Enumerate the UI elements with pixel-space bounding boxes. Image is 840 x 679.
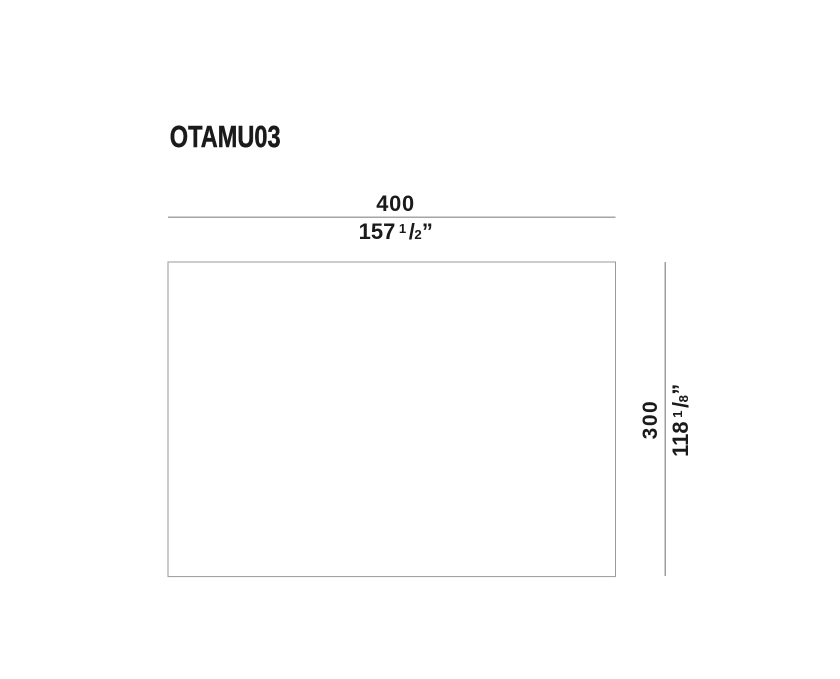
svg-text:300: 300 bbox=[639, 400, 662, 440]
svg-text:400: 400 bbox=[376, 191, 415, 216]
svg-text:OTAMU03: OTAMU03 bbox=[170, 120, 281, 154]
